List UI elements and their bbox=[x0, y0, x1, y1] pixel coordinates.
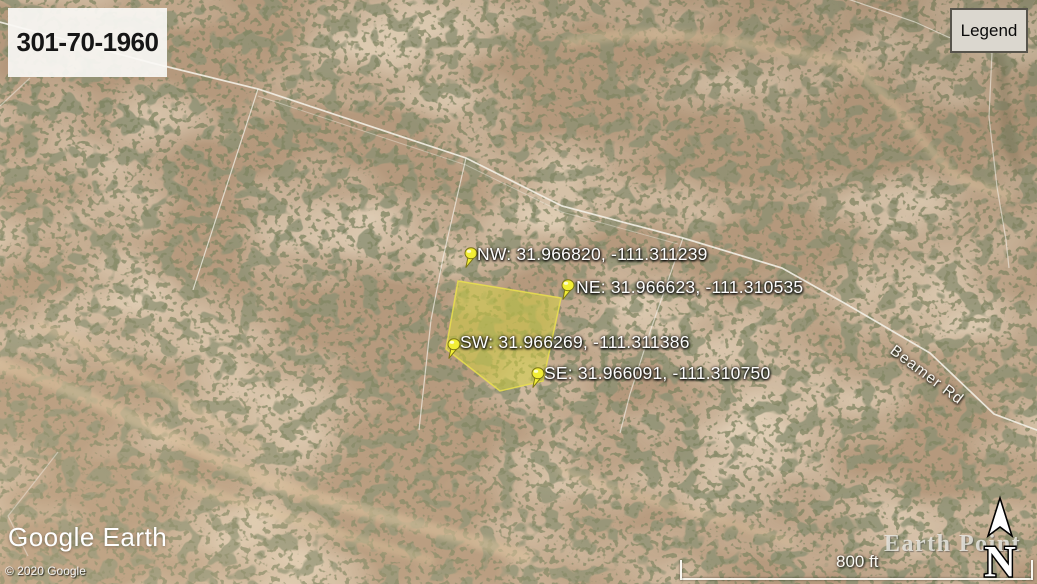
google-earth-viewport: 301-70-1960 Legend NW: 31.966820, -111.3… bbox=[0, 0, 1037, 584]
google-earth-logo: Google Earth bbox=[8, 522, 167, 553]
parcel-id-label: 301-70-1960 bbox=[8, 8, 167, 77]
north-arrow-icon bbox=[988, 498, 1012, 536]
copyright-text: © 2020 Google bbox=[5, 564, 86, 578]
pin-label-se: SE: 31.966091, -111.310750 bbox=[544, 363, 770, 384]
map-pin-ne[interactable] bbox=[558, 279, 578, 303]
legend-button[interactable]: Legend bbox=[950, 8, 1028, 53]
satellite-map[interactable] bbox=[0, 0, 1037, 584]
scale-bar-left-tick bbox=[680, 560, 682, 580]
scale-label: 800 ft bbox=[836, 552, 879, 572]
north-compass: N bbox=[967, 496, 1033, 584]
pin-label-ne: NE: 31.966623, -111.310535 bbox=[576, 277, 803, 298]
compass-n-label: N bbox=[984, 537, 1016, 584]
pin-label-nw: NW: 31.966820, -111.311239 bbox=[477, 244, 708, 265]
pin-label-sw: SW: 31.966269, -111.311386 bbox=[460, 332, 690, 353]
